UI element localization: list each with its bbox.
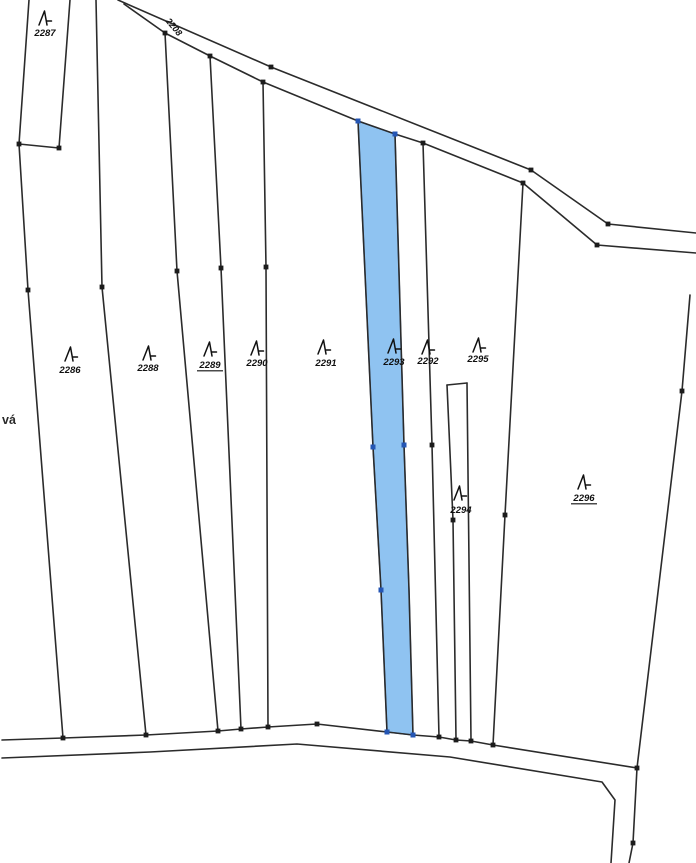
- vertex-dot: [163, 31, 168, 36]
- parcel-2294-top-boundary: [447, 383, 467, 385]
- vertex-dot: [17, 142, 22, 147]
- meadow-symbol-icon: [39, 11, 52, 25]
- map-viewport: 2287228622882289229022912293229222952294…: [0, 0, 696, 863]
- parcel-label-2293[interactable]: 2293: [382, 357, 405, 368]
- parcel-label-2287[interactable]: 2287: [33, 28, 56, 39]
- vertex-dot: [216, 729, 221, 734]
- vertex-dot: [421, 141, 426, 146]
- meadow-symbol-icon: [318, 340, 331, 354]
- vertex-dot: [175, 269, 180, 274]
- vertex-dot: [437, 735, 442, 740]
- place-name-fragment: vá: [2, 413, 16, 427]
- vertex-dot: [269, 65, 274, 70]
- highlighted-parcel-2293[interactable]: [358, 121, 413, 735]
- vertex-dot: [521, 181, 526, 186]
- boundary-2289-2290: [210, 56, 241, 729]
- meadow-symbol-icon: [473, 338, 486, 352]
- boundary-2295-2296: [493, 183, 523, 745]
- meadow-symbol-icon: [422, 340, 435, 354]
- meadow-symbol-icon: [578, 475, 591, 489]
- meadow-symbol-icon: [65, 347, 78, 361]
- parcel-label-2294[interactable]: 2294: [449, 505, 472, 516]
- vertex-dot: [266, 725, 271, 730]
- parcel-label-2290[interactable]: 2290: [245, 358, 268, 369]
- meadow-symbol-icon: [454, 486, 467, 500]
- vertex-dot: [315, 722, 320, 727]
- road-top-upper-edge: [118, 0, 696, 233]
- boundary-2288-2289: [165, 33, 218, 731]
- parcel-label-2288[interactable]: 2288: [136, 363, 159, 374]
- road-bottom-lower-edge: [2, 744, 615, 863]
- parcel-vertex-dot: [385, 730, 390, 735]
- vertex-dot: [208, 54, 213, 59]
- road-top-lower-edge: [124, 4, 696, 253]
- parcel-2296-right-boundary: [629, 295, 690, 863]
- parcel-2294-left-boundary: [447, 385, 456, 739]
- vertex-dot: [144, 733, 149, 738]
- vertex-dot: [451, 518, 456, 523]
- vertex-dot: [100, 285, 105, 290]
- vertex-dot: [264, 265, 269, 270]
- vertex-dot: [529, 168, 534, 173]
- parcel-2287-left-boundary: [19, 0, 29, 144]
- vertex-dot: [491, 743, 496, 748]
- vertex-dot: [469, 739, 474, 744]
- parcel-vertex-dot: [402, 443, 407, 448]
- vertex-dot: [57, 146, 62, 151]
- meadow-symbol-icon: [204, 342, 217, 356]
- vertex-dot: [239, 727, 244, 732]
- parcel-vertex-dot: [393, 132, 398, 137]
- vertex-dot: [454, 738, 459, 743]
- parcel-vertex-dot: [411, 733, 416, 738]
- parcel-2294-right-boundary: [467, 383, 471, 740]
- boundary-2290-2291: [263, 82, 268, 727]
- parcel-label-2291[interactable]: 2291: [314, 358, 336, 369]
- parcel-vertex-dot: [371, 445, 376, 450]
- parcel-vertex-dot: [379, 588, 384, 593]
- parcel-2287-bottom-boundary: [19, 144, 59, 148]
- vertex-dot: [61, 736, 66, 741]
- boundary-2292-2295: [423, 143, 439, 737]
- vertex-dot: [595, 243, 600, 248]
- vertex-dot: [631, 841, 636, 846]
- parcel-label-2296[interactable]: 2296: [572, 493, 595, 504]
- vertex-dot: [635, 766, 640, 771]
- meadow-symbol-icon: [251, 341, 264, 355]
- vertex-dot: [680, 389, 685, 394]
- vertex-dot: [261, 80, 266, 85]
- vertex-dot: [606, 222, 611, 227]
- parcel-label-2295[interactable]: 2295: [466, 354, 489, 365]
- parcel-2286-left-boundary: [19, 144, 63, 738]
- parcel-2287-right-boundary: [59, 0, 70, 148]
- vertex-dot: [26, 288, 31, 293]
- cadastral-map: 2287228622882289229022912293229222952294…: [0, 0, 696, 863]
- vertex-dot: [430, 443, 435, 448]
- vertex-dot: [219, 266, 224, 271]
- parcel-label-2292[interactable]: 2292: [416, 356, 439, 367]
- vertex-dot: [503, 513, 508, 518]
- parcel-label-2286[interactable]: 2286: [58, 365, 81, 376]
- parcel-label-2289[interactable]: 2289: [198, 360, 221, 371]
- parcel-vertex-dot: [356, 119, 361, 124]
- meadow-symbol-icon: [143, 346, 156, 360]
